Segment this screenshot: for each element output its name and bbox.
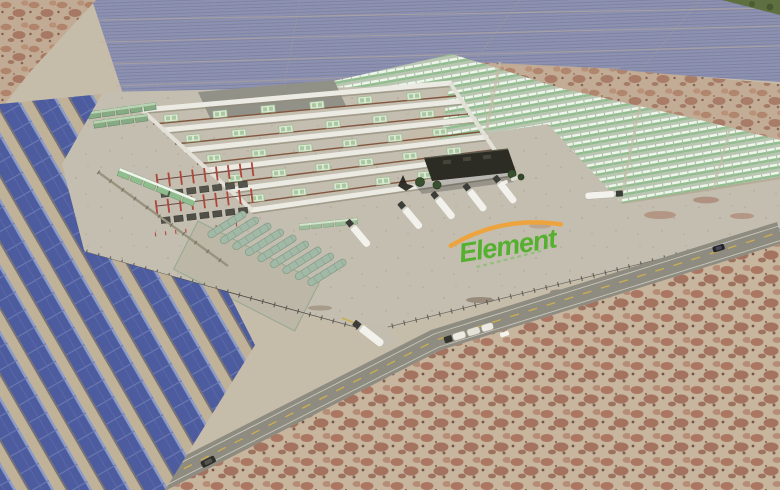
scene-canvas: Element xyxy=(0,0,780,490)
facility-rendering: Element xyxy=(0,0,780,490)
